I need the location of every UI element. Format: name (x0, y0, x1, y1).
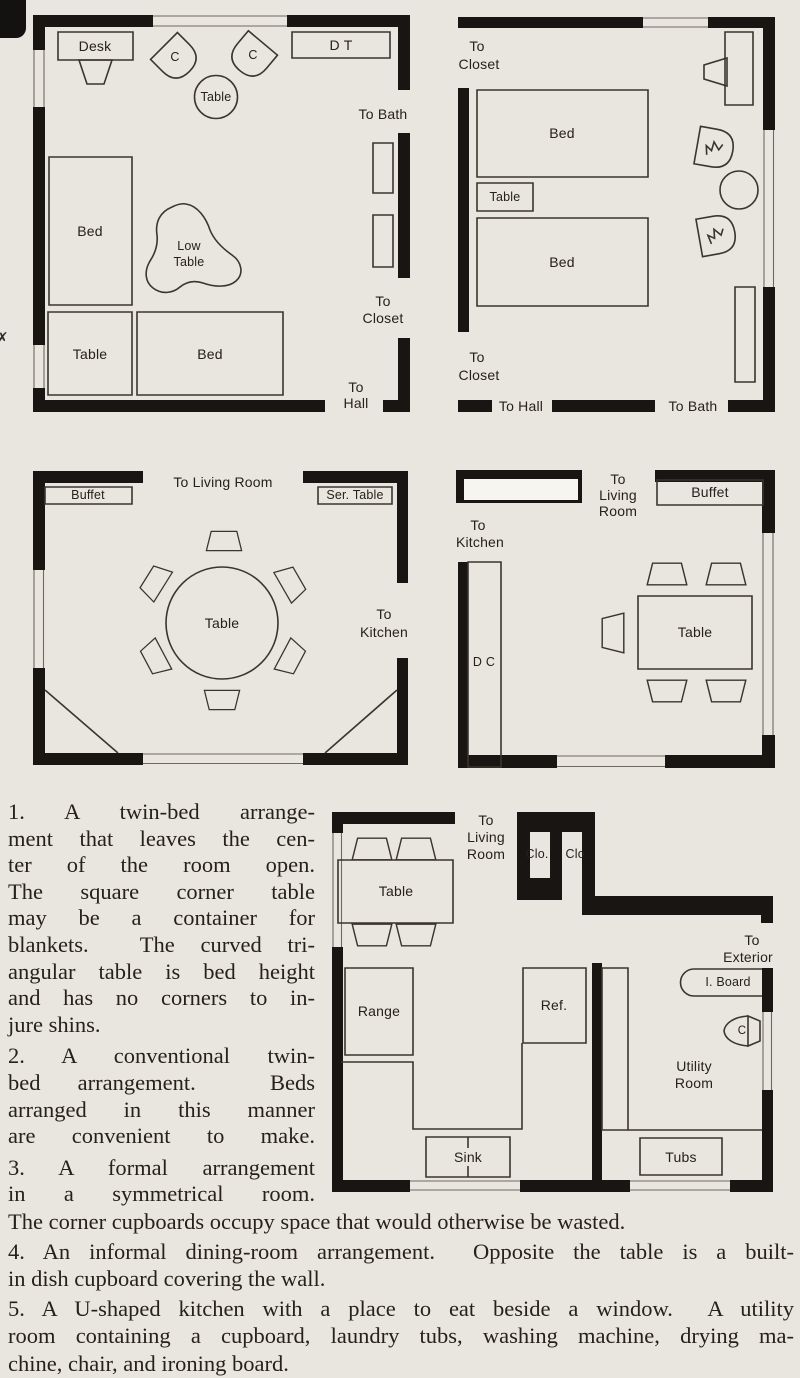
to-living-room-label3: Room (467, 846, 505, 862)
caption-bottom: The corner cupboards occupy space that w… (8, 1208, 794, 1378)
caption-item-2: 2. A conventional twin- bed arrangement.… (8, 1043, 315, 1149)
range-label: Range (358, 1003, 400, 1019)
to-closet-bottom-label2: Closet (459, 367, 500, 383)
caption-line: 5. A U-shaped kitchen with a place to ea… (8, 1295, 794, 1323)
upholstered-chair-top (694, 126, 736, 170)
to-kitchen-label2: Kitchen (456, 534, 504, 550)
utility-room-label1: Utility (676, 1058, 712, 1074)
caption-line: jure shins. (8, 1012, 315, 1039)
caption-line: 3. A formal arrangement (8, 1155, 315, 1182)
caption-line: bed arrangement. Beds (8, 1070, 315, 1097)
to-closet-label1: To (375, 293, 390, 309)
caption-line: in dish cupboard covering the wall. (8, 1265, 794, 1293)
caption-line: room containing a cupboard, laundry tubs… (8, 1322, 794, 1350)
plan-3-formal-dining-room: Buffet Ser. Table Table To Living Room T… (28, 465, 438, 770)
to-living-room-label: To Living Room (173, 474, 272, 490)
to-bath-label: To Bath (669, 398, 718, 414)
caption-line: may be a container for (8, 905, 315, 932)
to-hall-label2: Hall (344, 395, 369, 411)
to-closet-top-label2: Closet (459, 56, 500, 72)
to-kitchen-label1: To (470, 517, 485, 533)
buffet-label: Buffet (691, 484, 729, 500)
side-table-round (720, 171, 758, 209)
desk-chair (79, 60, 112, 84)
plan-1-twin-bedroom: Desk C C Table D T Bed Low Table Table B… (28, 6, 414, 416)
to-closet-top-label1: To (469, 38, 484, 54)
dish-cupboard-label: D C (473, 655, 495, 669)
dresser-chair (704, 58, 727, 86)
bed-bottom-label: Bed (197, 346, 223, 362)
to-closet-label2: Closet (363, 310, 404, 326)
utility-cupboard (602, 968, 628, 1130)
plan-5-kitchen-utility: Table Range Ref. Sink Tubs I. Board C To… (325, 800, 780, 1195)
upholstered-chair-bottom (696, 213, 738, 257)
dining-chairs (602, 563, 746, 702)
counter-outline (341, 1043, 522, 1129)
to-bath-label: To Bath (359, 106, 408, 122)
dining-table-label: Table (678, 624, 712, 640)
kitchen-table-label: Table (379, 883, 413, 899)
book-page: Desk C C Table D T Bed Low Table Table B… (0, 0, 800, 1378)
caption-line: The corner cupboards occupy space that w… (8, 1208, 794, 1236)
caption-item-5: 5. A U-shaped kitchen with a place to ea… (8, 1295, 794, 1378)
round-table-label: Table (201, 90, 232, 104)
sink-label: Sink (454, 1149, 483, 1165)
closet2-label: Clo. (565, 847, 588, 861)
wall-window-inset (464, 479, 578, 500)
caption-line: 1. A twin-bed arrange- (8, 799, 315, 826)
plan2-windows (643, 18, 774, 287)
to-exterior-label1: To (744, 932, 759, 948)
bed-left-label: Bed (77, 223, 103, 239)
caption-line: arranged in this manner (8, 1097, 315, 1124)
caption-item-4: 4. An informal dining-room arrangement. … (8, 1238, 794, 1293)
caption-line: angular table is bed height (8, 959, 315, 986)
corner-table-label: Table (73, 346, 107, 362)
dresser-bottom (735, 287, 755, 382)
caption-line: The square corner table (8, 879, 315, 906)
caption-line: 4. An informal dining-room arrangement. … (8, 1238, 794, 1266)
corner-cupboard-right (325, 690, 397, 753)
to-living-room-label1: To (610, 471, 625, 487)
caption-line: and has no corners to in- (8, 985, 315, 1012)
buffet-label: Buffet (71, 488, 105, 502)
chest-lower (373, 215, 393, 267)
plan3-windows (34, 570, 303, 764)
to-hall-label: To Hall (499, 398, 543, 414)
corner-cupboard-left (45, 690, 118, 753)
to-kitchen-label1: To (376, 606, 391, 622)
caption-item-3: 3. A formal arrangement in a symmetrical… (8, 1155, 315, 1208)
to-kitchen-label2: Kitchen (360, 624, 408, 640)
low-table-label2: Table (174, 255, 205, 269)
to-hall-label1: To (348, 379, 363, 395)
to-closet-bottom-label1: To (469, 349, 484, 365)
caption-line: blankets. The curved tri- (8, 932, 315, 959)
chair-right-label: C (248, 48, 257, 62)
caption-line: in a symmetrical room. (8, 1181, 315, 1208)
bed-bottom-label: Bed (549, 254, 575, 270)
refrigerator-label: Ref. (541, 997, 567, 1013)
caption-line: ter of the room open. (8, 852, 315, 879)
caption-line: are convenient to make. (8, 1123, 315, 1150)
closet1-label: Clo. (525, 847, 548, 861)
plan-4-informal-dining-room: Buffet D C Table To Living Room To Kitch… (452, 465, 778, 770)
caption-line: chine, chair, and ironing board. (8, 1350, 794, 1378)
to-living-room-label2: Living (599, 487, 637, 503)
utility-room-label2: Room (675, 1075, 713, 1091)
chest-upper (373, 143, 393, 193)
to-exterior-label2: Exterior (723, 949, 773, 965)
ironing-board-label: I. Board (705, 975, 750, 989)
to-living-room-label1: To (478, 812, 493, 828)
page-corner-scan-artifact (0, 0, 26, 38)
to-living-room-label3: Room (599, 503, 637, 519)
utility-chair-label: C (738, 1025, 747, 1037)
plan1-windows (34, 16, 287, 388)
margin-x-mark: ✗ (0, 329, 9, 347)
plan-2-twin-bedroom: Bed Table Bed To Closet To Closet To Hal… (452, 6, 780, 416)
desk-label: Desk (79, 38, 112, 54)
tubs-label: Tubs (665, 1149, 696, 1165)
to-living-room-label2: Living (467, 829, 505, 845)
dining-table-label: Table (205, 615, 239, 631)
low-table-label1: Low (177, 239, 201, 253)
dressing-table-label: D T (330, 37, 353, 53)
dresser-top (725, 32, 753, 105)
bed-top-label: Bed (549, 125, 575, 141)
night-table-label: Table (490, 190, 521, 204)
caption-line: 2. A conventional twin- (8, 1043, 315, 1070)
plan4-windows (557, 533, 773, 767)
chair-left-label: C (170, 50, 179, 64)
caption-item-1: 1. A twin-bed arrange- ment that leaves … (8, 799, 315, 1038)
serving-table-label: Ser. Table (326, 488, 383, 502)
caption-line: ment that leaves the cen- (8, 826, 315, 853)
caption-column: 1. A twin-bed arrange- ment that leaves … (8, 799, 315, 1208)
